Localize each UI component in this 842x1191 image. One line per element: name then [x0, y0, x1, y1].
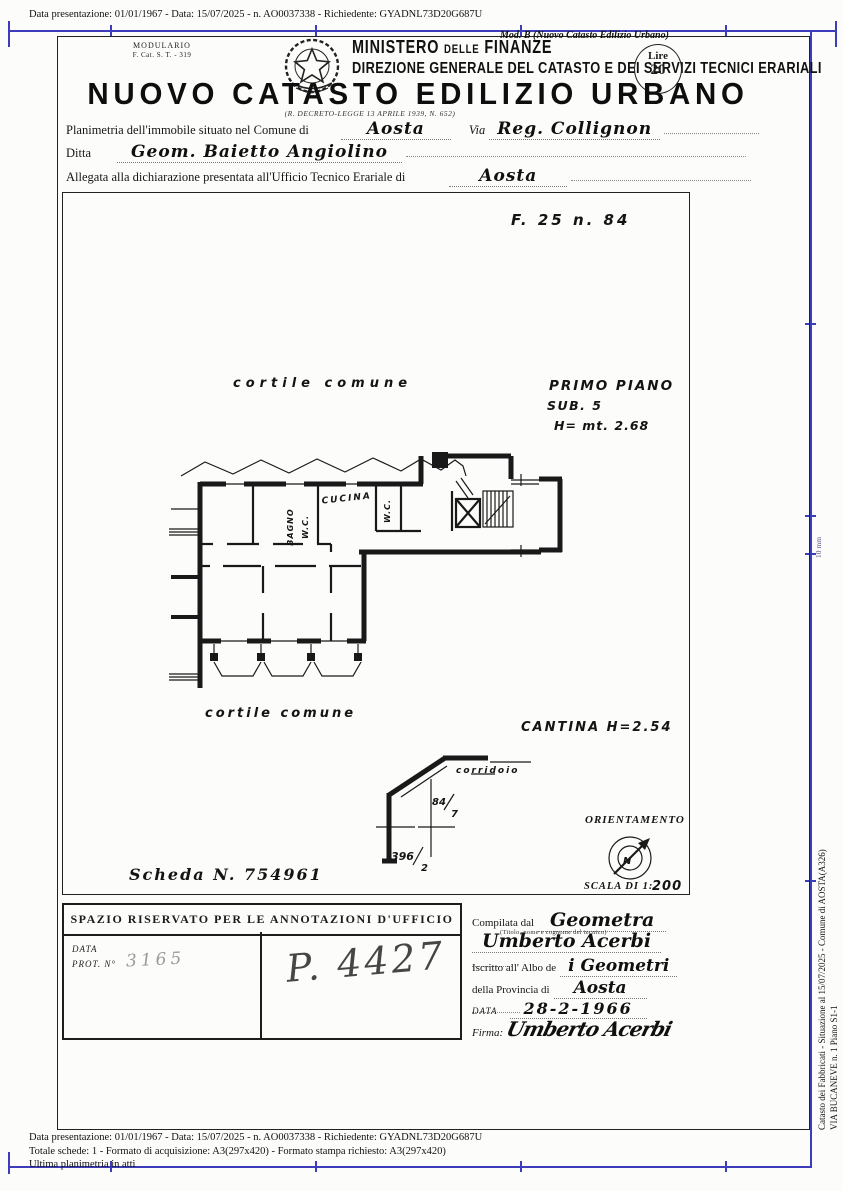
scan-header-strip: Data presentazione: 01/01/1967 - Data: 1…: [29, 9, 482, 20]
modulario-line1: MODULARIO: [92, 41, 232, 51]
scheda-label: Scheda N. 754961: [129, 865, 323, 884]
ruler-10mm-label: 10 mm: [814, 512, 823, 558]
sub-label: SUB. 5: [547, 398, 602, 413]
courtyard-bottom-label: cortile comune: [205, 706, 356, 721]
scan-footer-line2: Totale schede: 1 - Formato di acquisizio…: [29, 1146, 446, 1157]
floor-title-label: PRIMO PIANO: [549, 378, 674, 394]
compilata-label: Compilata dal: [472, 917, 534, 929]
room-cucina-label: CUCINA: [321, 491, 372, 506]
cantina-label: CANTINA H=2.54: [521, 720, 673, 735]
floor-plan-svg: F. 25 n. 84 cortile comune PRIMO PIANO S…: [63, 193, 689, 894]
parcel-396-den: 2: [421, 863, 428, 874]
annotations-note-handwriting: P. 4427: [284, 933, 447, 991]
drawing-box: F. 25 n. 84 cortile comune PRIMO PIANO S…: [62, 192, 690, 895]
page-title: NUOVO CATASTO EDILIZIO URBANO: [70, 76, 670, 112]
field-ditta: Ditta Geom. Baietto Angiolino: [66, 142, 766, 162]
lire-stamp-label: Lire: [635, 51, 681, 62]
firma-label: Firma:: [472, 1027, 503, 1039]
albo-label: Iscritto all' Albo de: [472, 962, 556, 974]
provincia-value: Aosta: [554, 978, 647, 999]
ministry-word-2: DELLE: [444, 42, 479, 56]
main-floor-plan: [169, 452, 651, 879]
scala-value: 200: [652, 879, 682, 894]
compiler-block: Compilata dal Geometra (Titolo, nome e c…: [460, 903, 690, 1038]
map-ref-label: F. 25 n. 84: [511, 211, 630, 229]
height-label: H= mt. 2.68: [554, 418, 649, 433]
side-text-address: VIA BUCANEVE n. 1 Piano S1-1: [829, 995, 839, 1130]
ditta-label: Ditta: [66, 146, 91, 160]
staircase: [456, 478, 513, 527]
side-text-catasto: Catasto dei Fabbricati - Situazione al 1…: [817, 858, 827, 1130]
ufficio-label: Allegata alla dichiarazione presentata a…: [66, 170, 405, 184]
scala-label: SCALA DI 1:: [584, 881, 653, 892]
scan-footer-line1: Data presentazione: 01/01/1967 - Data: 1…: [29, 1132, 482, 1143]
room-wc2-label: W.C.: [383, 499, 392, 523]
room-wc1-label: W.C.: [301, 515, 310, 539]
compiler-data-label: DATA: [472, 1006, 498, 1016]
orientamento-label: ORIENTAMENTO: [585, 814, 685, 826]
field-comune: Planimetria dell'immobile situato nel Co…: [66, 119, 766, 139]
ministry-line1: MINISTERO DELLE FINANZE: [352, 37, 602, 58]
north-label: N: [623, 856, 632, 867]
parcel-84-den: 7: [451, 809, 458, 820]
parcel-396-num: 396: [391, 850, 414, 863]
annotations-prot-value: 3165: [126, 948, 186, 971]
corridoio-label: corridoio: [456, 766, 519, 776]
firma-signature: Umberto Acerbi: [504, 1017, 674, 1041]
comune-value: Aosta: [341, 119, 451, 140]
modulario-line2: F. Cat. S. T. - 319: [92, 51, 232, 60]
ministry-word-1: MINISTERO: [352, 37, 439, 57]
annotations-table: DATA PROT. N° 3165 P. 4427: [62, 932, 462, 1040]
albo-value: i Geometri: [560, 956, 677, 977]
parcel-84-num: 84: [432, 797, 446, 808]
annotations-data-label: DATA: [72, 944, 98, 954]
ufficio-value: Aosta: [449, 166, 567, 187]
modulario-box: MODULARIO F. Cat. S. T. - 319: [92, 41, 232, 60]
courtyard-top-label: cortile comune: [233, 376, 412, 391]
annotations-prot-label: PROT. N°: [72, 959, 116, 969]
compiler-name-value: Umberto Acerbi: [472, 930, 661, 953]
compiler-data-value: 28-2-1966: [510, 999, 647, 1019]
room-bagno-label: BAGNO: [286, 508, 295, 545]
comune-label: Planimetria dell'immobile situato nel Co…: [66, 123, 309, 137]
provincia-label: della Provincia di: [472, 984, 550, 996]
balconies: [214, 644, 361, 676]
elevator-shaft: [452, 491, 480, 531]
via-label: Via: [469, 123, 485, 137]
field-ufficio: Allegata alla dichiarazione presentata a…: [66, 166, 766, 186]
page-subtitle: (R. DECRETO-LEGGE 13 APRILE 1939, N. 652…: [70, 109, 670, 118]
ministry-word-3: FINANZE: [484, 37, 552, 57]
cadastral-document-page: Data presentazione: 01/01/1967 - Data: 1…: [0, 0, 842, 1191]
via-value: Reg. Collignon: [489, 119, 660, 140]
scan-footer-line3: Ultima planimetria in atti: [29, 1159, 135, 1170]
ditta-value: Geom. Baietto Angiolino: [117, 142, 402, 163]
